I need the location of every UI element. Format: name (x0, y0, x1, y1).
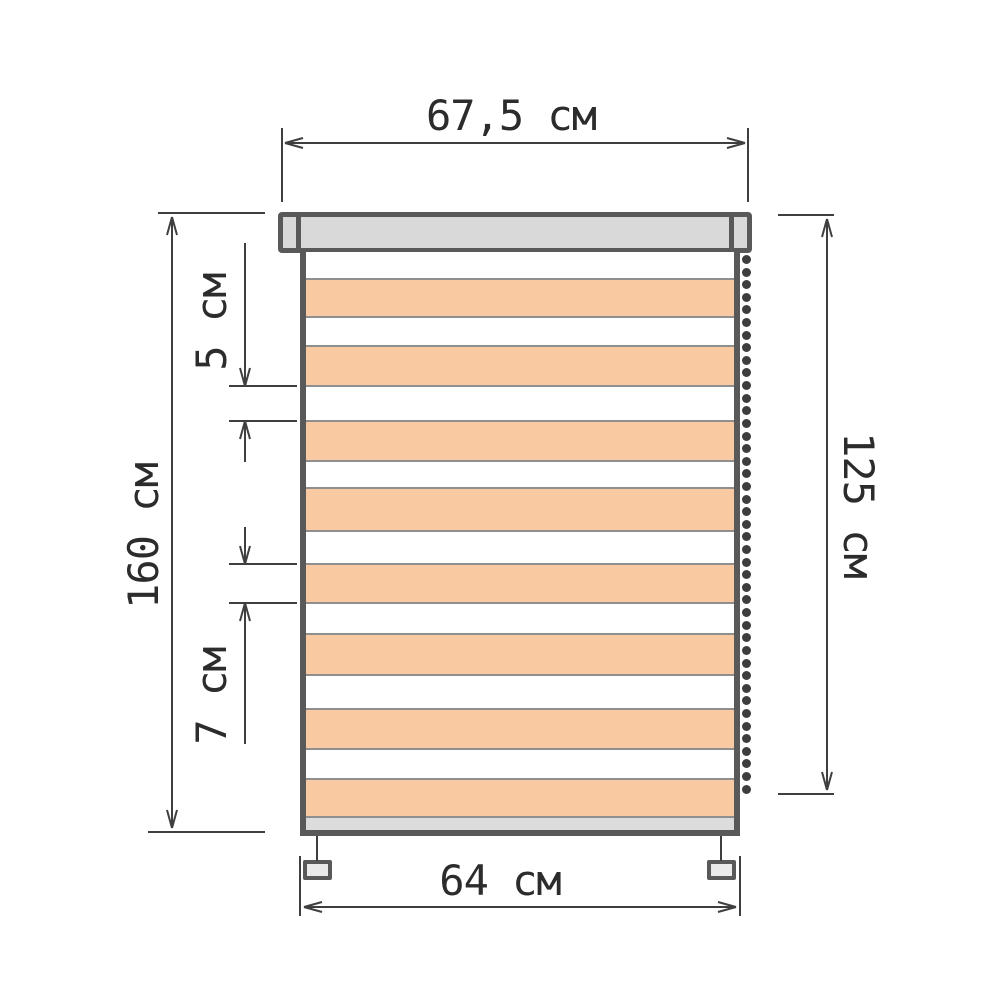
chain-bead (742, 507, 751, 516)
fabric-stripe-opaque (306, 778, 734, 816)
fabric-stripe-opaque (306, 563, 734, 602)
chain-bead (742, 293, 751, 302)
chain-bead (742, 734, 751, 743)
chain-bead (742, 709, 751, 718)
fabric-stripe-sheer (306, 748, 734, 778)
chain-bead (742, 406, 751, 415)
fabric-stripe-sheer (306, 252, 734, 278)
fabric-stripe-sheer (306, 460, 734, 487)
chain (741, 255, 751, 794)
fabric-stripe-sheer (306, 602, 734, 633)
chain-bead (742, 280, 751, 289)
fabric-stripe-opaque (306, 278, 734, 316)
chain-bead (742, 785, 751, 794)
cassette-end-cap-left (296, 217, 301, 248)
chain-bead (742, 772, 751, 781)
chain-bead (742, 583, 751, 592)
chain-bead (742, 394, 751, 403)
fabric-stripe-sheer (306, 385, 734, 420)
chain-bead (742, 545, 751, 554)
chain-bead (742, 457, 751, 466)
fabric-stripe-opaque (306, 345, 734, 385)
chain-bead (742, 595, 751, 604)
chain-bead (742, 633, 751, 642)
fabric-stripes (306, 252, 734, 816)
dim-label-opaque-stripe: 7 см (191, 647, 233, 744)
arrow-sheer-up-icon (240, 421, 250, 439)
blind-fabric (300, 252, 740, 836)
chain-bead (742, 671, 751, 680)
mount-bracket-left (303, 860, 332, 880)
chain-bead (742, 747, 751, 756)
chain-bead (742, 331, 751, 340)
chain-bead (742, 558, 751, 567)
chain-bead (742, 722, 751, 731)
chain-bead (742, 469, 751, 478)
arrow-left-down-icon (167, 810, 177, 828)
chain-bead (742, 419, 751, 428)
arrow-bottom-left-icon (304, 902, 322, 912)
chain-bead (742, 570, 751, 579)
chain-bead (742, 684, 751, 693)
fabric-stripe-opaque (306, 420, 734, 460)
chain-bead (742, 759, 751, 768)
chain-bead (742, 495, 751, 504)
arrow-left-up-icon (167, 217, 177, 235)
fabric-stripe-opaque (306, 633, 734, 674)
arrow-top-left-icon (285, 138, 303, 148)
chain-bead (742, 268, 751, 277)
fabric-stripe-sheer (306, 674, 734, 708)
cassette (278, 212, 752, 253)
fabric-stripe-sheer (306, 316, 734, 345)
chain-bead (742, 343, 751, 352)
chain-bead (742, 621, 751, 630)
chain-bead (742, 646, 751, 655)
arrow-opaque-up-icon (240, 603, 250, 621)
cassette-end-cap-right (729, 217, 734, 248)
chain-bead (742, 532, 751, 541)
chain-bead (742, 659, 751, 668)
dim-label-left-height: 160 см (123, 463, 165, 609)
arrow-opaque-down-icon (240, 546, 250, 564)
fabric-stripe-opaque (306, 708, 734, 748)
dim-label-right-height: 125 см (837, 432, 879, 578)
arrow-top-right-icon (727, 138, 745, 148)
fabric-stripe-sheer (306, 530, 734, 563)
blind-dimension-diagram: 67,5 см 160 см 5 см 7 см 125 см 64 см (0, 0, 1000, 1000)
mount-bracket-right (707, 860, 736, 880)
chain-bead (742, 696, 751, 705)
arrow-bottom-right-icon (718, 902, 736, 912)
chain-bead (742, 444, 751, 453)
chain-bead (742, 318, 751, 327)
dim-label-sheer-stripe: 5 см (191, 273, 233, 370)
chain-bead (742, 432, 751, 441)
chain-bead (742, 482, 751, 491)
dim-label-top-width: 67,5 см (426, 95, 596, 137)
chain-bead (742, 255, 751, 264)
bottom-rail (306, 816, 734, 830)
dim-label-bottom-width: 64 см (439, 860, 560, 902)
chain-bead (742, 381, 751, 390)
arrow-right-up-icon (822, 219, 832, 237)
chain-bead (742, 520, 751, 529)
chain-bead (742, 305, 751, 314)
arrow-sheer-down-icon (240, 368, 250, 386)
chain-bead (742, 356, 751, 365)
arrow-right-down-icon (822, 772, 832, 790)
fabric-stripe-opaque (306, 487, 734, 530)
chain-bead (742, 608, 751, 617)
chain-bead (742, 368, 751, 377)
